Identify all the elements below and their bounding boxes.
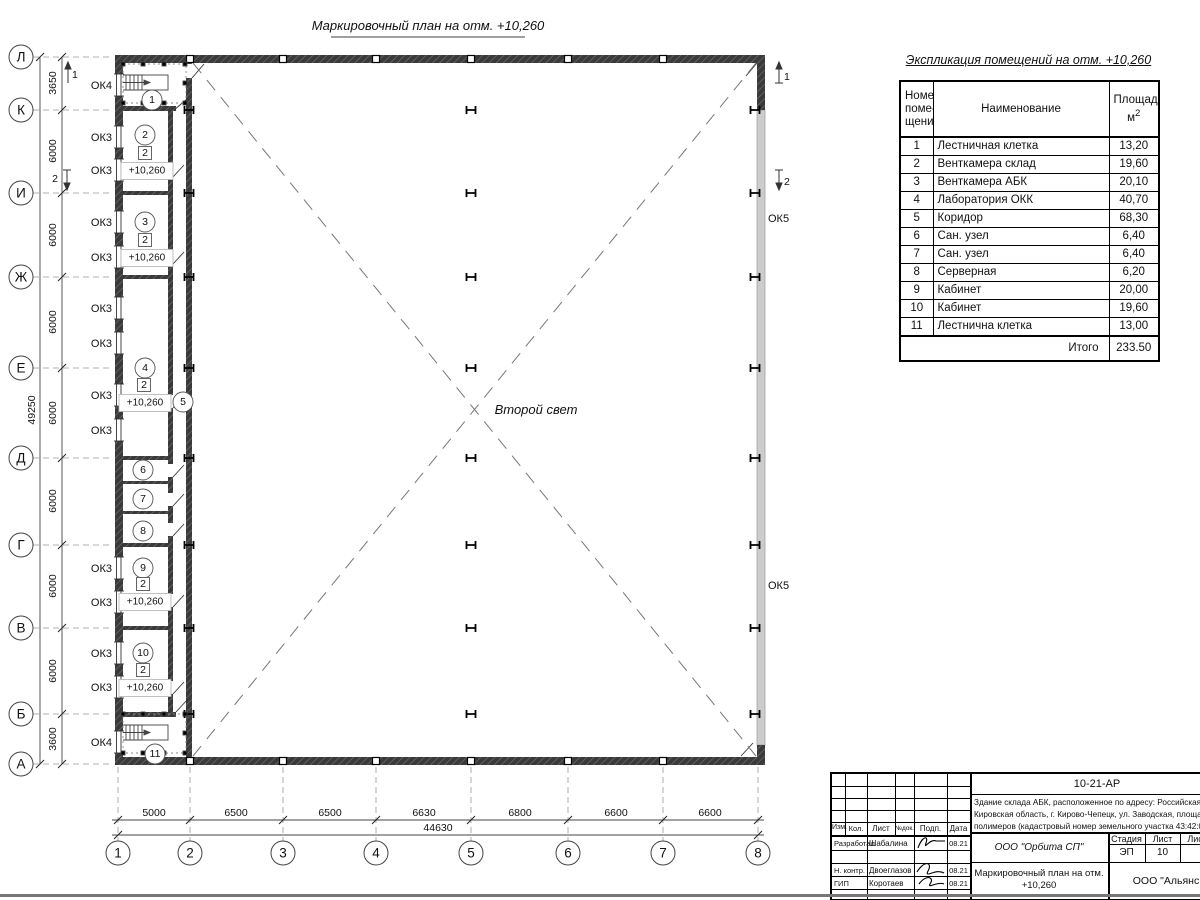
col-dim-label: 6630: [412, 807, 436, 819]
signature-icon: [918, 838, 945, 848]
elevation-label: +10,260: [129, 166, 166, 177]
tb-company2: ООО "Альянс: [1108, 875, 1200, 887]
window-mark-label: ОК5: [768, 213, 789, 225]
axis-row-label: Е: [16, 361, 25, 376]
signature-icon: [917, 864, 944, 874]
column-symbols: [185, 56, 760, 765]
window-mark-label: ОК3: [91, 165, 112, 177]
schedule-header-name: Наименование: [933, 81, 1109, 137]
col-dim-label: 6500: [224, 807, 248, 819]
room-number: 5: [180, 396, 186, 408]
axis-col-label: 2: [186, 846, 194, 861]
axis-row-label: И: [16, 186, 26, 201]
schedule-total-value: 233.50: [1109, 336, 1159, 361]
tb-description: Здание склада АБК, расположенное по адре…: [974, 797, 1200, 833]
tb-col-header: Изм.: [832, 824, 845, 831]
room-number: 10: [137, 647, 149, 659]
wall-rooms-east: [168, 108, 173, 716]
plan-title: Маркировочный план на отм. +10,260: [312, 18, 545, 33]
row-dim-label: 6000: [47, 401, 59, 425]
signatures: [914, 832, 948, 892]
drawing-sheet: Маркировочный план на отм. +10,260: [0, 0, 1200, 900]
elevation-label: +10,260: [129, 253, 166, 264]
axis-row-label: А: [16, 757, 25, 772]
axis-col-label: 8: [754, 846, 762, 861]
col-dim-label: 5000: [142, 807, 166, 819]
door-leaf: [173, 63, 757, 756]
schedule-total-row: Итого 233.50: [900, 336, 1159, 361]
window-mark-label: ОК3: [91, 390, 112, 402]
type-mark: 2: [140, 578, 146, 590]
axis-col-label: 6: [564, 846, 572, 861]
wall-top: [115, 55, 765, 63]
schedule-header-num: Номерпоме-щения: [900, 81, 933, 137]
tb-company: ООО "Орбита СП": [970, 842, 1108, 853]
room-schedule-table: Номерпоме-щения Наименование Площадь,м2 …: [899, 80, 1160, 362]
wall-right-light: [757, 110, 765, 745]
tb-col-header: Лист: [867, 824, 895, 833]
window-mark-label: ОК5: [768, 580, 789, 592]
schedule-total-label: Итого: [900, 336, 1109, 361]
schedule-row: 11Лестнична клетка13,00: [900, 318, 1159, 337]
room-number: 9: [140, 562, 146, 574]
room-number: 11: [150, 748, 161, 760]
tb-col-header: Дата: [947, 824, 970, 833]
window-mark-label: ОК3: [91, 597, 112, 609]
tb-sheet-number: 10: [1145, 847, 1180, 858]
tb-stage-value: ЭП: [1108, 847, 1145, 858]
schedule-row: 10Кабинет19,60: [900, 300, 1159, 318]
schedule-row: 2Венткамера склад19,60: [900, 156, 1159, 174]
schedule-header-row: Номерпоме-щения Наименование Площадь,м2: [900, 81, 1159, 137]
row-dim-label: 6000: [47, 310, 59, 334]
window-mark-label: ОК3: [91, 648, 112, 660]
schedule-header-area: Площадь,м2: [1109, 81, 1159, 137]
window-mark-label: ОК3: [91, 132, 112, 144]
walls: [115, 55, 765, 765]
axis-col-label: 4: [372, 846, 380, 861]
tb-person-name: Двоеглазов: [869, 866, 912, 875]
elevation-label: +10,260: [127, 683, 164, 694]
total-col-dim-label: 44630: [423, 822, 452, 834]
hall-diagonals: [193, 63, 756, 756]
schedule-row: 8Серверная6,20: [900, 264, 1159, 282]
axis-row-label: В: [16, 621, 25, 636]
type-mark: 2: [141, 379, 147, 391]
elevation-label: +10,260: [127, 597, 164, 608]
room-number: 6: [140, 464, 146, 476]
room-number: 4: [142, 362, 148, 374]
schedule-row: 7Сан. узел6,40: [900, 246, 1159, 264]
room-number: 3: [142, 216, 148, 228]
schedule-row: 9Кабинет20,00: [900, 282, 1159, 300]
type-mark: 2: [140, 664, 146, 676]
second-light-label: Второй свет: [495, 402, 578, 417]
col-dim-label: 6800: [508, 807, 532, 819]
elevation-label: +10,260: [127, 398, 164, 409]
schedule-row: 5Коридор68,30: [900, 210, 1159, 228]
tb-stage-header: Лист: [1145, 834, 1180, 844]
row-dim-label: 6000: [47, 574, 59, 598]
tb-role: Н. контр.: [834, 866, 865, 875]
row-dim-label: 3600: [47, 727, 59, 751]
window-mark-label: ОК3: [91, 252, 112, 264]
room-number: 7: [140, 493, 146, 505]
doors: [167, 63, 757, 756]
tb-sheet-title: Маркировочный план на отм. +10,260: [970, 868, 1108, 892]
col-dim-label: 6500: [318, 807, 342, 819]
schedule-title: Экспликация помещений на отм. +10,260: [899, 53, 1158, 67]
tb-stage-header: Стадия: [1108, 834, 1145, 844]
room-number: 2: [142, 129, 148, 141]
wall-right-top: [757, 55, 765, 110]
window-mark-label: ОК3: [91, 563, 112, 575]
row-dim-label: 6000: [47, 659, 59, 683]
title-block: Изм. Кол. Лист №док. Подп. Дата Разработ…: [830, 772, 1200, 900]
schedule-row: 3Венткамера АБК20,10: [900, 174, 1159, 192]
tb-date: 08.21: [947, 866, 970, 875]
row-dim-label: 6000: [47, 223, 59, 247]
room-number: 8: [140, 525, 146, 537]
tb-date: 08.21: [947, 879, 970, 888]
schedule-row: 6Сан. узел6,40: [900, 228, 1159, 246]
window-mark-label: ОК3: [91, 217, 112, 229]
axis-col-label: 7: [659, 846, 667, 861]
type-mark: 2: [142, 234, 148, 246]
axis-col-label: 5: [467, 846, 475, 861]
col-dim-label: 6600: [604, 807, 628, 819]
row-dim-label: 6000: [47, 139, 59, 163]
tb-doc-code: 10-21-АР: [970, 778, 1200, 790]
total-row-dim-label: 49250: [26, 395, 38, 424]
floor-plan: Маркировочный план на отм. +10,260: [0, 0, 830, 900]
window-mark-label: ОК4: [91, 80, 112, 92]
axis-row-label: Ж: [15, 270, 28, 285]
row-dim-label: 6000: [47, 489, 59, 513]
section-mark-label: 1: [784, 71, 790, 83]
section-mark-label: 2: [784, 176, 790, 188]
window-mark-label: ОК3: [91, 425, 112, 437]
room-number: 1: [149, 94, 155, 106]
window-mark-label: ОК3: [91, 303, 112, 315]
type-mark: 2: [142, 147, 148, 159]
tb-stage-header: Листов: [1180, 834, 1200, 844]
axis-circles-bottom: [106, 841, 770, 865]
col-dim-label: 6600: [698, 807, 722, 819]
tb-role: ГИП: [834, 879, 849, 888]
window-mark-label: ОК3: [91, 338, 112, 350]
tb-date: 08.21: [947, 839, 970, 848]
axis-col-label: 3: [279, 846, 287, 861]
axis-col-label: 1: [114, 846, 122, 861]
signature-icon: [919, 878, 944, 886]
wall-bottom: [115, 757, 765, 765]
section-mark-label: 1: [72, 69, 78, 81]
tb-col-header: №док.: [895, 825, 914, 832]
axis-row-label: Г: [17, 538, 25, 553]
window-mark-label: ОК3: [91, 682, 112, 694]
axis-row-label: Л: [17, 50, 26, 65]
tb-person-name: Шабалина: [869, 839, 908, 848]
schedule-row: 4Лаборатория ОКК40,70: [900, 192, 1159, 210]
window-mark-label: ОК4: [91, 737, 112, 749]
section-mark-label: 2: [52, 173, 58, 185]
tb-person-name: Коротаев: [869, 879, 904, 888]
axis-row-label: Д: [16, 451, 25, 466]
schedule-row: 1Лестничная клетка13,20: [900, 137, 1159, 156]
wall-right-bottom: [757, 745, 765, 765]
axis-row-label: Б: [17, 707, 26, 722]
tb-sheet-count: 1: [1180, 847, 1200, 858]
tb-col-header: Кол.: [845, 824, 867, 833]
axis-row-label: К: [17, 103, 25, 118]
row-dim-label: 3650: [47, 71, 59, 95]
sheet-frame-bottom: [0, 894, 1200, 897]
